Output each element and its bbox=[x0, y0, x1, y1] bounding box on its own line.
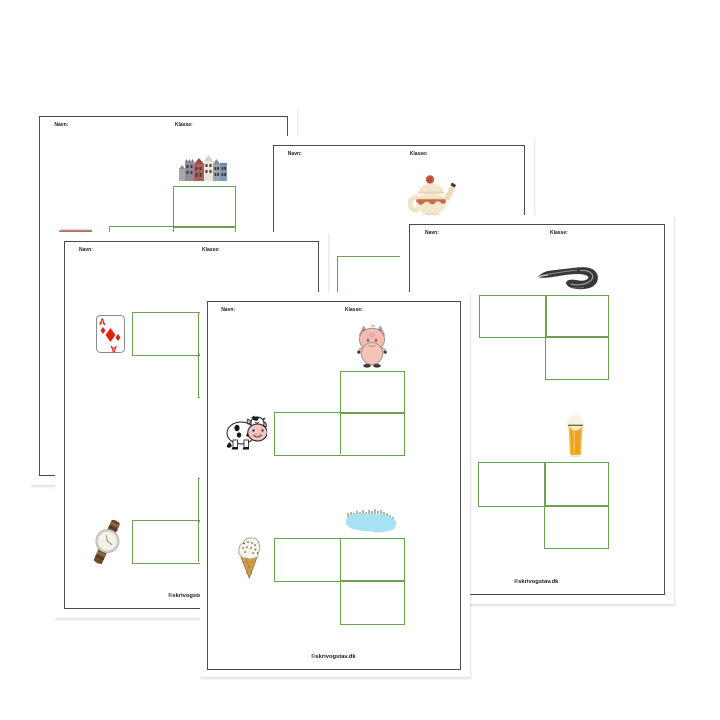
svg-text:A: A bbox=[99, 317, 106, 327]
svg-text:A: A bbox=[110, 344, 117, 353]
